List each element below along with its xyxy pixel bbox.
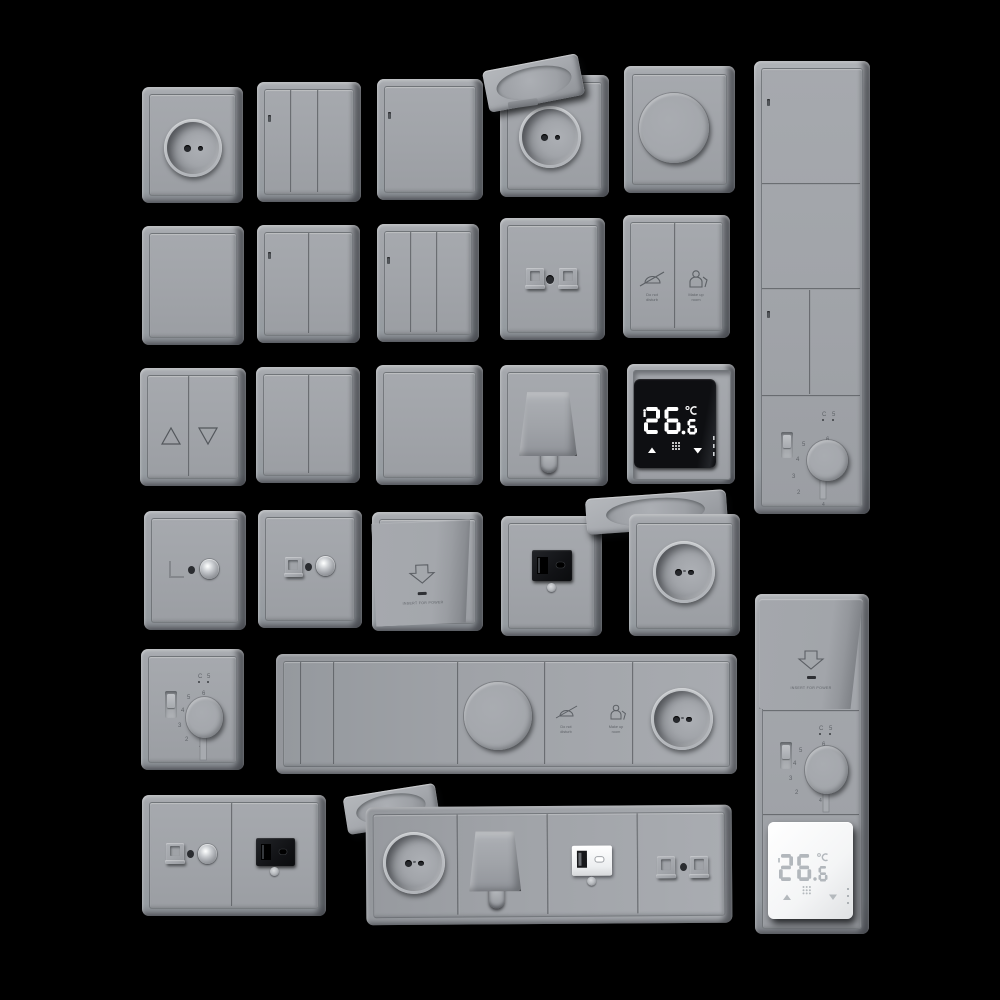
svg-text:disturb: disturb: [560, 730, 571, 734]
svg-text:C: C: [198, 674, 203, 680]
svg-text:5: 5: [207, 674, 211, 680]
svg-text:Make up: Make up: [609, 725, 624, 729]
svg-text:disturb: disturb: [646, 297, 659, 302]
svg-text:4: 4: [181, 708, 185, 714]
svg-text:2: 2: [185, 737, 189, 743]
svg-text:3: 3: [178, 723, 182, 729]
svg-text:Do not: Do not: [560, 725, 572, 729]
svg-text:room: room: [691, 297, 701, 302]
svg-text:INSERT FOR POWER: INSERT FOR POWER: [402, 600, 443, 605]
svg-text:5: 5: [187, 695, 191, 701]
svg-text:room: room: [612, 730, 621, 734]
